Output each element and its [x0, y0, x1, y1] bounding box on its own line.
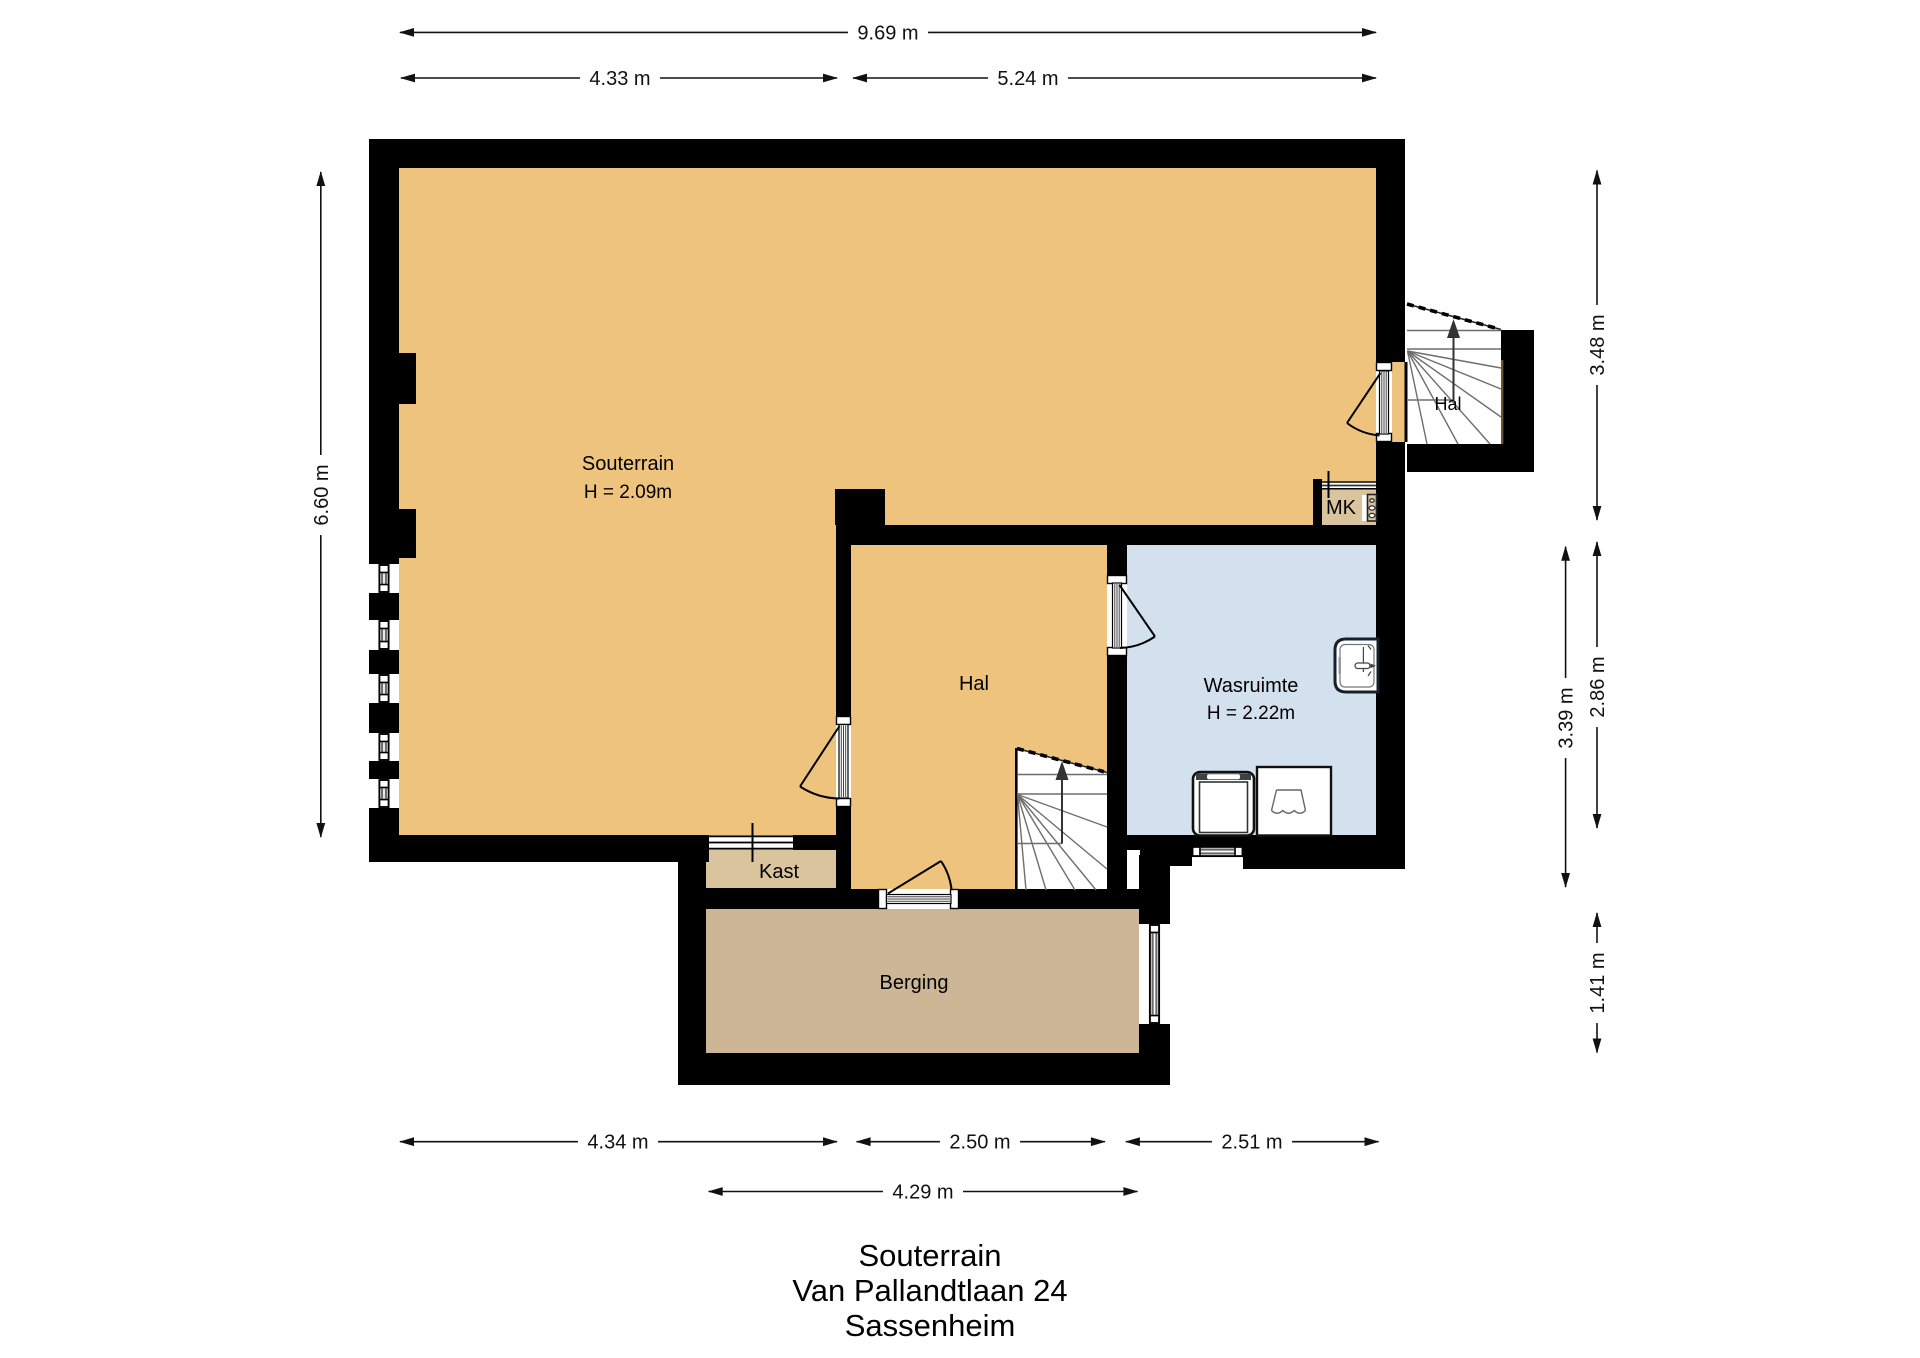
svg-text:9.69 m: 9.69 m — [857, 22, 918, 44]
svg-text:H = 2.09m: H = 2.09m — [584, 482, 672, 503]
svg-text:5.24 m: 5.24 m — [997, 68, 1058, 90]
svg-text:4.34 m: 4.34 m — [587, 1132, 648, 1154]
svg-text:4.29 m: 4.29 m — [892, 1182, 953, 1204]
svg-text:Kast: Kast — [759, 861, 799, 883]
svg-text:3.48 m: 3.48 m — [1587, 314, 1609, 375]
svg-text:2.86 m: 2.86 m — [1587, 656, 1609, 717]
svg-text:Souterrain: Souterrain — [582, 453, 674, 475]
svg-text:Hal: Hal — [1434, 394, 1461, 414]
svg-text:4.33 m: 4.33 m — [589, 68, 650, 90]
svg-text:3.39 m: 3.39 m — [1556, 687, 1578, 748]
svg-text:H = 2.22m: H = 2.22m — [1207, 703, 1295, 724]
svg-text:Sassenheim: Sassenheim — [845, 1308, 1016, 1343]
svg-text:Wasruimte: Wasruimte — [1204, 675, 1299, 697]
svg-text:2.51 m: 2.51 m — [1221, 1132, 1282, 1154]
svg-text:Hal: Hal — [959, 673, 989, 695]
svg-text:Souterrain: Souterrain — [858, 1238, 1001, 1273]
svg-text:2.50 m: 2.50 m — [949, 1132, 1010, 1154]
svg-text:1.41 m: 1.41 m — [1587, 952, 1609, 1013]
svg-text:Van Pallandtlaan 24: Van Pallandtlaan 24 — [792, 1273, 1067, 1308]
svg-text:Berging: Berging — [880, 972, 949, 994]
svg-text:MK: MK — [1326, 497, 1357, 519]
svg-text:6.60 m: 6.60 m — [311, 464, 333, 525]
